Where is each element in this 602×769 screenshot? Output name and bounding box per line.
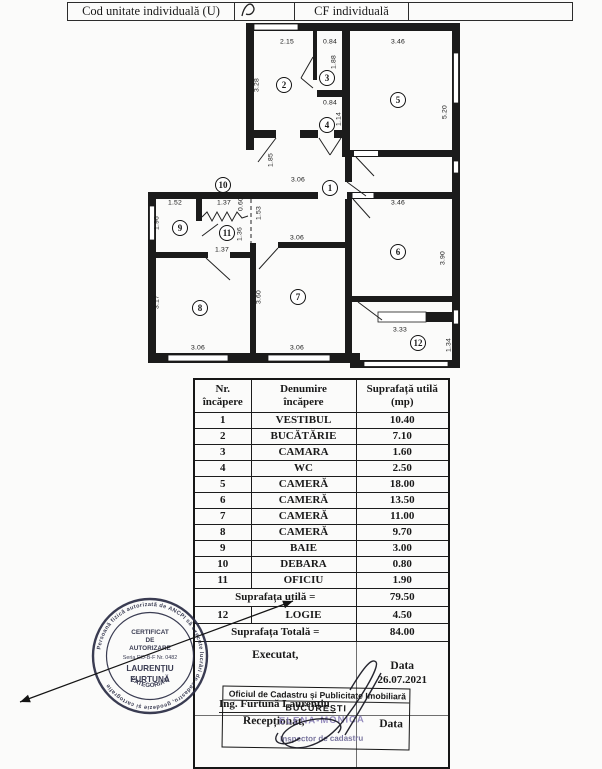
table-header-row: Nr. încăpere Denumire încăpere Suprafață…: [194, 379, 449, 413]
room-name-cell: OFICIU: [251, 573, 356, 589]
dimension-label: 3.60: [256, 290, 263, 304]
dimension-label: 1.96: [154, 216, 161, 230]
room-nr-cell: 2: [194, 429, 251, 445]
stamp-line5: LAURENȚIU: [126, 664, 173, 673]
total-label: Suprafața Totală =: [194, 624, 356, 642]
dimension-label: 0.60: [238, 197, 245, 211]
room-name-cell: BAIE: [251, 541, 356, 557]
table-row: 9BAIE3.00: [194, 541, 449, 557]
dimension-label: 3.33: [393, 327, 407, 334]
table-row: 7CAMERĂ11.00: [194, 509, 449, 525]
stamp-line2: DE: [146, 637, 156, 644]
room-name-cell: VESTIBUL: [251, 413, 356, 429]
room-area-cell: 13.50: [356, 493, 449, 509]
subtotal-label: Suprafața utilă =: [194, 589, 356, 607]
floor-plan: 2.150.843.463.281.885.200.841.141.853.06…: [140, 20, 470, 370]
room-number-12: 12: [410, 335, 426, 351]
table-row: 2BUCĂTĂRIE7.10: [194, 429, 449, 445]
room-name-cell: WC: [251, 461, 356, 477]
total-value: 84.00: [356, 624, 449, 642]
room-number-9: 9: [172, 220, 188, 236]
table-row: 5CAMERĂ18.00: [194, 477, 449, 493]
room-area-cell: 2.50: [356, 461, 449, 477]
col-header-denumire: Denumire încăpere: [251, 379, 356, 413]
room-area-cell: 11.00: [356, 509, 449, 525]
room-area-cell: 1.60: [356, 445, 449, 461]
table-row: 10DEBARA0.80: [194, 557, 449, 573]
total-row: Suprafața Totală = 84.00: [194, 624, 449, 642]
room-name-cell: CAMERĂ: [251, 525, 356, 541]
dimension-label: 1.37: [217, 200, 231, 207]
dimension-label: 1.36: [237, 227, 244, 241]
room-area-cell: 0.80: [356, 557, 449, 573]
subtotal-row: Suprafața utilă = 79.50: [194, 589, 449, 607]
table-row: 6CAMERĂ13.50: [194, 493, 449, 509]
room-number-11: 11: [219, 225, 235, 241]
table-row: 11OFICIU1.90: [194, 573, 449, 589]
room-name-cell: BUCĂTĂRIE: [251, 429, 356, 445]
room-nr-cell: 9: [194, 541, 251, 557]
room-area-cell: 10.40: [356, 413, 449, 429]
dimension-label: 1.53: [256, 206, 263, 220]
room-area-cell: 3.00: [356, 541, 449, 557]
ocpi-office-name: Oficiul de Cadastru și Publicitate Imobi…: [223, 687, 409, 704]
table-row: 8CAMERĂ9.70: [194, 525, 449, 541]
header-cell-empty: [408, 3, 572, 20]
room-name-cell: DEBARA: [251, 557, 356, 573]
col-header-denumire-line2: încăpere: [252, 396, 356, 409]
ocpi-reception-box: Oficiul de Cadastru și Publicitate Imobi…: [222, 686, 411, 751]
header-cell-handwritten: [234, 3, 294, 20]
room-number-6: 6: [390, 244, 406, 260]
room-number-8: 8: [192, 300, 208, 316]
dimension-label: 1.34: [446, 338, 453, 352]
col-header-suprafata: Suprafață utilă (mp): [356, 379, 449, 413]
reception-date-label: Data: [379, 718, 403, 730]
room-area-cell: 18.00: [356, 477, 449, 493]
col-header-nr-line2: încăpere: [195, 396, 251, 409]
dimension-label: 3.06: [191, 345, 205, 352]
scanned-cadastral-document: { "colors":{"ink":"#1a1a1a","stamp_ink":…: [0, 0, 602, 768]
room-nr-cell: 3: [194, 445, 251, 461]
executed-label: Executat,: [195, 649, 356, 662]
room-area-cell: 7.10: [356, 429, 449, 445]
room-area-cell: 9.70: [356, 525, 449, 541]
header-cell-cf-individuala: CF individuală: [294, 3, 408, 20]
room-number-3: 3: [319, 70, 335, 86]
room-number-4: 4: [319, 117, 335, 133]
inspector-title-stamp: Inspector de cadastru: [257, 733, 387, 743]
dimension-label: 0.84: [323, 39, 337, 46]
dimension-label: 1.37: [215, 247, 229, 254]
table-row-logie: 12 LOGIE 4.50: [194, 607, 449, 624]
room-name-cell: CAMERĂ: [251, 477, 356, 493]
room-number-7: 7: [290, 289, 306, 305]
col-header-suprafata-line1: Suprafață utilă: [357, 383, 449, 396]
date-label: Data: [357, 660, 449, 673]
room-nr-cell: 5: [194, 477, 251, 493]
room-nr-cell: 1: [194, 413, 251, 429]
header-strip: Cod unitate individuală (U) CF individua…: [67, 2, 573, 21]
room-number-5: 5: [390, 92, 406, 108]
room-nr-cell: 6: [194, 493, 251, 509]
dimension-label: 1.52: [168, 200, 182, 207]
dimension-label: 3.28: [254, 78, 261, 92]
dimension-label: 3.46: [391, 200, 405, 207]
certification-stamp: Persoană fizică autorizată de ANCPI să e…: [88, 594, 212, 718]
date-value: 26.07.2021: [357, 674, 449, 687]
room-nr-cell: 7: [194, 509, 251, 525]
room-nr-cell: 8: [194, 525, 251, 541]
room-area-cell: 4.50: [356, 607, 449, 624]
stamp-line3: AUTORIZARE: [129, 645, 172, 652]
dimension-label: 2.15: [280, 39, 294, 46]
dimension-label: 3.90: [440, 251, 447, 265]
table-row: 4WC2.50: [194, 461, 449, 477]
room-nr-cell: 10: [194, 557, 251, 573]
room-area-cell: 1.90: [356, 573, 449, 589]
table-row: 1VESTIBUL10.40: [194, 413, 449, 429]
floor-plan-walls: [140, 20, 470, 370]
dimension-label: 0.84: [323, 100, 337, 107]
dimension-label: 1.14: [336, 112, 343, 126]
col-header-nr: Nr. încăpere: [194, 379, 251, 413]
dimension-label: 3.06: [290, 345, 304, 352]
dimension-label: 1.88: [331, 55, 338, 69]
dimension-label: 1.85: [268, 153, 275, 167]
dimension-label: 5.20: [442, 105, 449, 119]
room-name-cell: CAMERĂ: [251, 493, 356, 509]
room-name-cell: CAMERĂ: [251, 509, 356, 525]
dimension-label: 3.17: [154, 295, 161, 309]
room-number-2: 2: [276, 77, 292, 93]
dimension-label: 3.46: [391, 39, 405, 46]
col-header-denumire-line1: Denumire: [252, 383, 356, 396]
stamp-line1: CERTIFICAT: [131, 629, 169, 636]
stamp-line4: Seria RO-B-F Nr. 0482: [123, 655, 178, 661]
subtotal-value: 79.50: [356, 589, 449, 607]
stamp-line6: FURTUNĂ: [130, 674, 170, 684]
dimension-label: 3.06: [291, 177, 305, 184]
room-number-10: 10: [215, 177, 231, 193]
room-nr-cell: 4: [194, 461, 251, 477]
room-number-1: 1: [322, 180, 338, 196]
inspector-name-stamp: ELENA-MONICA: [279, 714, 365, 727]
dimension-label: 3.06: [290, 235, 304, 242]
col-header-nr-line1: Nr.: [195, 383, 251, 396]
ocpi-city: BUCUREȘTI: [223, 702, 409, 715]
room-nr-cell: 11: [194, 573, 251, 589]
col-header-suprafata-line2: (mp): [357, 396, 449, 409]
room-name-cell: LOGIE: [251, 607, 356, 624]
table-row: 3CAMARA1.60: [194, 445, 449, 461]
header-cell-cod-unitate: Cod unitate individuală (U): [68, 3, 234, 20]
room-name-cell: CAMARA: [251, 445, 356, 461]
